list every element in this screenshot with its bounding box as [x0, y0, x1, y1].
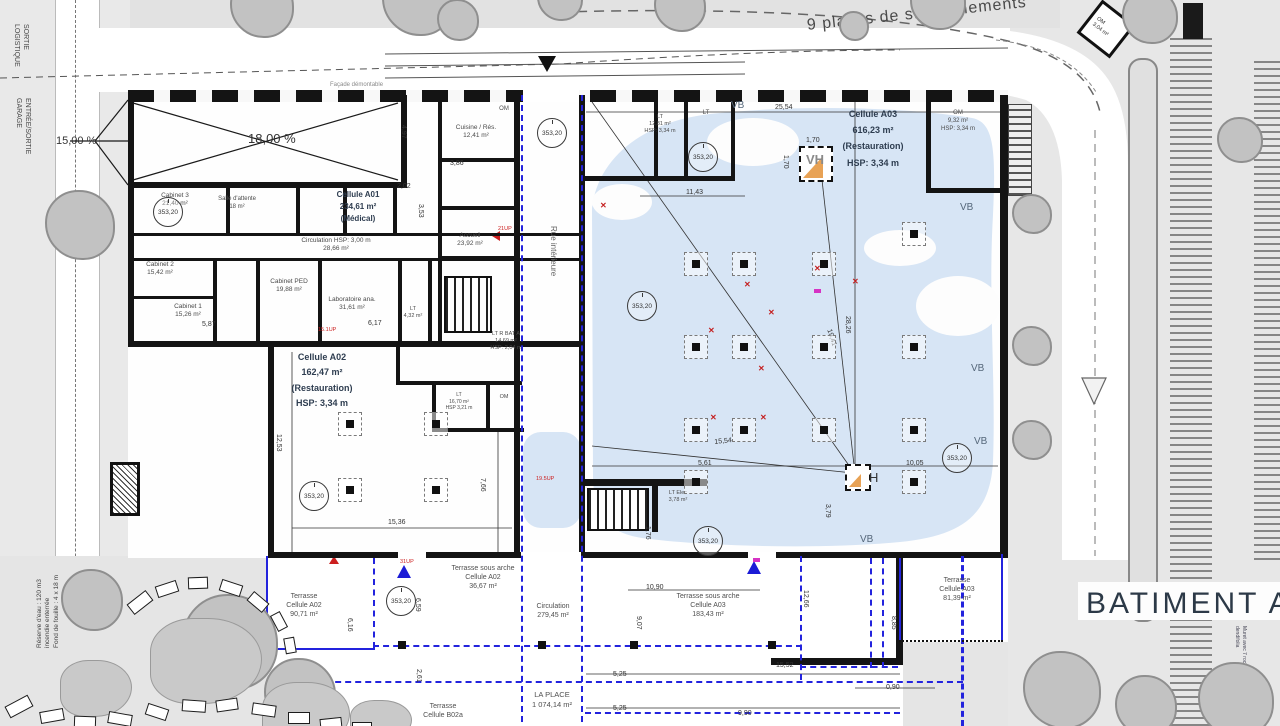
door-tag: 21UP [498, 226, 512, 232]
planting-capsule [1128, 58, 1158, 622]
magenta-marker [814, 289, 821, 293]
structural-column [684, 252, 708, 276]
wall-segment [652, 486, 658, 532]
dimension-label: 6,17 [368, 319, 382, 328]
level-marker: 353,20 [153, 197, 183, 227]
level-marker: 353,20 [693, 526, 723, 556]
rock-paver [319, 717, 342, 726]
level-marker: 353,20 [386, 586, 416, 616]
red-cross-marker: ✕ [710, 413, 717, 422]
structural-column [732, 335, 756, 359]
wall-segment [128, 233, 583, 236]
tree [1012, 194, 1052, 234]
room-label: OM [500, 394, 509, 401]
level-marker: 353,20 [627, 291, 657, 321]
tree [1217, 117, 1263, 163]
tree [839, 11, 869, 41]
dimension-label: 5,25 [613, 704, 627, 713]
room-label: Circulation HSP: 3,00 m 28,66 m² [301, 237, 370, 254]
facade-demontable: Façade démontable [330, 82, 383, 90]
terrace-limit-dashed [882, 558, 884, 668]
tree [1012, 326, 1052, 366]
room-label: LT 16,70 m² HSP 3,21 m [446, 392, 473, 412]
curved-road [975, 28, 1128, 560]
arch-post [768, 641, 776, 649]
column-core [692, 426, 700, 434]
red-cross-marker: ✕ [758, 364, 765, 373]
dimension-label: 3,53 [416, 204, 425, 218]
place-limit-dashed [800, 666, 898, 668]
wall-segment [128, 95, 134, 347]
level-marker: 353,20 [299, 481, 329, 511]
room-label: OM [499, 106, 509, 114]
structural-column [684, 470, 708, 494]
room-label: Salle d'attente 18 m² [218, 196, 256, 212]
column-core [432, 420, 440, 428]
column-core [910, 230, 918, 238]
terrace-label: Terrasse Cellule A03 81,39 m² [939, 576, 974, 603]
exterior-stair-hatch [1008, 104, 1032, 196]
rock-paver [182, 699, 207, 713]
cell-label: Cellule A02 162,47 m² (Restauration) HSP… [291, 350, 352, 411]
terrace-door-arrow-a02 [397, 565, 411, 578]
wall-segment [128, 296, 217, 299]
dimension-label: 6,16 [345, 618, 354, 632]
structural-column [902, 335, 926, 359]
wall-segment [128, 182, 407, 188]
wall-segment [926, 95, 931, 193]
ramp-slope-lines [70, 100, 398, 185]
structural-column [684, 418, 708, 442]
dimension-label: 9,07 [634, 616, 643, 630]
place-limit-dashed [373, 645, 802, 647]
site-plan: ✕ BATIMENT A9 places de stationnementsFa… [0, 0, 1280, 726]
column-core [910, 343, 918, 351]
room-label: LT 4,32 m² [404, 306, 423, 320]
dimension-label: 1,70 [806, 136, 820, 145]
room-label: Laboratoire ana. 31,61 m² [328, 296, 375, 313]
ramp-main: 18,00 % [248, 131, 296, 148]
wall-segment [514, 95, 520, 558]
place-limit-dashed [285, 681, 963, 683]
wall-segment [684, 95, 688, 179]
dimension-label: 1,76 [643, 526, 652, 540]
vh-shaft-bottom [845, 464, 871, 491]
dimension-label: 12,66 [801, 590, 810, 608]
structural-column [424, 412, 448, 436]
stairs-a03 [587, 488, 649, 531]
terrace-edge-blue [266, 648, 375, 650]
terrace-label: Terrasse Cellule A02 90,71 m² [286, 592, 321, 619]
column-core [820, 426, 828, 434]
level-marker: 353,20 [942, 443, 972, 473]
dimension-label: 10,05 [906, 459, 924, 468]
red-cross-marker: ✕ [768, 308, 775, 317]
rue-top-opening [523, 90, 579, 102]
structural-column [732, 418, 756, 442]
structural-column [338, 412, 362, 436]
arch-post [398, 641, 406, 649]
terrace-label: Terrasse sous arche Cellule A03 183,43 m… [676, 592, 739, 619]
room-label: LT R BAT A 14,69 m² HSP: 2,04 m [490, 331, 521, 352]
terrace-limit-dashed [800, 556, 802, 680]
dimension-label: 4,97 [399, 125, 408, 139]
red-cross-marker: ✕ [708, 326, 715, 335]
column-core [910, 426, 918, 434]
structural-column [338, 478, 362, 502]
terrace-limit-dashed [870, 558, 872, 668]
room-label: Cabinet 2 15,42 m² [146, 261, 174, 278]
dimension-label: 28,26 [843, 316, 852, 334]
dimension-label: 3,79 [823, 504, 832, 518]
wall-segment [396, 381, 522, 385]
wall-segment [396, 345, 400, 385]
vh-top-label: VH [806, 152, 824, 169]
column-core [346, 486, 354, 494]
cell-label: Cellule A03 616,23 m² (Restauration) HSP… [842, 106, 903, 171]
dimension-label: 2,02 [397, 182, 411, 191]
rock-paver [74, 716, 96, 726]
terrace-limit-dashed [373, 558, 375, 648]
vb-marker: VB [960, 201, 973, 214]
room-label: Cabinet 1 15,26 m² [174, 303, 202, 320]
wall-segment [1000, 95, 1008, 558]
room-label: Cuisine / Rés. 12,41 m² [456, 124, 496, 141]
level-marker: 353,20 [537, 118, 567, 148]
wall-segment [128, 258, 583, 261]
dimension-label: 3,86 [450, 159, 464, 168]
rock-paver [188, 577, 208, 590]
dimension-label: 10,90 [646, 583, 664, 592]
dimension-label: 15,36 [388, 518, 406, 527]
arch-post [630, 641, 638, 649]
reserve-eau: Réserve d'eau : 120 m3 incendie enterrée… [36, 575, 61, 648]
structural-column [732, 252, 756, 276]
property-line [0, 50, 900, 78]
tree [61, 569, 123, 631]
red-cross-marker: ✕ [744, 280, 751, 289]
vb-marker: VB [860, 533, 873, 546]
terrace-edge-blue [1001, 554, 1003, 642]
rock-paver [288, 712, 310, 724]
room-label: Accueil 23,92 m² [457, 232, 483, 249]
dimension-label: 5,25 [613, 670, 627, 679]
tree [1023, 651, 1101, 726]
dimension-label: 5,61 [698, 459, 712, 468]
dimension-label: 15,52 [776, 661, 794, 670]
tree [45, 190, 115, 260]
tree [437, 0, 479, 41]
cell-label: Cellule A01 234,61 m² (Médical) [337, 189, 380, 225]
dimension-label: 2,61 [414, 669, 423, 683]
door-opening [521, 552, 581, 558]
parking-lines [385, 48, 1008, 78]
terrace-limit-dashed [581, 95, 583, 722]
dimension-label: 5,87 [202, 320, 216, 329]
ramp-side: 15,00 % [56, 134, 96, 148]
vh-bottom-label: H [869, 470, 878, 487]
dimension-label: 8,85 [889, 616, 898, 630]
vb-marker: VB [731, 99, 744, 112]
tree [1012, 420, 1052, 460]
wall-segment [486, 385, 490, 432]
north-entrance-arrow [538, 56, 556, 72]
dimension-label: 11,43 [686, 188, 703, 197]
door-tag: 19.5UP [536, 476, 554, 482]
rock-paver [352, 722, 372, 726]
wall-segment [296, 185, 300, 235]
dimension-label: 12,53 [274, 434, 283, 452]
wall-segment [256, 258, 260, 345]
entree-sortie-garage: ENTRÉE/SORTIE GARAGE [14, 98, 32, 154]
rue-interieure: Rue intérieure [548, 226, 558, 276]
column-core [346, 420, 354, 428]
column-core [692, 260, 700, 268]
door-tag: 15.1UP [318, 327, 336, 333]
terrace-label: Terrasse sous arche Cellule A02 36,67 m² [451, 564, 514, 591]
wall-segment [926, 188, 1006, 193]
dimension-label: 9,90 [738, 709, 752, 718]
structural-column [902, 470, 926, 494]
wall-segment [438, 95, 442, 345]
wall-segment [583, 176, 735, 181]
wall-segment [393, 185, 397, 235]
dimension-label: 0,90 [886, 683, 900, 692]
column-core [820, 260, 828, 268]
wall-segment [213, 258, 217, 345]
column-core [740, 426, 748, 434]
north-marker-block [1183, 3, 1203, 39]
terrace-label: LA PLACE 1 074,14 m² [532, 690, 572, 710]
wall-segment [428, 258, 432, 345]
terrace-limit-dashed [521, 95, 523, 722]
dimension-label: 7,66 [478, 478, 487, 492]
wall-segment [654, 95, 658, 179]
room-label: OM 9,32 m² HSP: 3,34 m [941, 110, 975, 133]
red-cross-marker: ✕ [600, 201, 607, 210]
magenta-marker [753, 558, 760, 562]
structural-column [902, 418, 926, 442]
door-opening [398, 552, 426, 558]
sortie-logistique: SORTIE LOGISTIQUE [12, 24, 30, 67]
red-cross-marker: ✕ [852, 277, 859, 286]
terrace-door-arrow-a03 [747, 561, 761, 574]
terrace-a03-dotted-edge [899, 640, 1003, 642]
dimension-label: 1,70 [781, 155, 790, 169]
dimension-label: 25,54 [775, 103, 793, 112]
reserve-hatch-box [110, 462, 140, 516]
structural-column [902, 222, 926, 246]
column-core [692, 343, 700, 351]
structural-column [812, 418, 836, 442]
column-core [432, 486, 440, 494]
column-core [740, 343, 748, 351]
terrace-label: Terrasse Cellule B02a [423, 702, 463, 720]
door-tag: 31UP [400, 559, 414, 565]
arch-post [538, 641, 546, 649]
wall-segment [438, 206, 518, 210]
stairs-medical-wing [444, 276, 492, 333]
room-label: Cabinet PED 19,88 m² [270, 278, 308, 295]
structural-column [424, 478, 448, 502]
structural-column [812, 335, 836, 359]
vb-marker: VB [971, 362, 984, 375]
batiment-a-title: BATIMENT A [1086, 584, 1280, 623]
structural-column [684, 335, 708, 359]
red-cross-marker: ✕ [760, 413, 767, 422]
terrace-edge-blue [899, 558, 901, 642]
room-label: LT 12,81 m² HSP: 3,34 m [644, 114, 675, 135]
wall-segment [398, 258, 402, 345]
red-cross-marker: ✕ [814, 264, 821, 273]
column-core [820, 343, 828, 351]
column-core [740, 260, 748, 268]
dimension-label: 15,54 [714, 436, 732, 447]
level-marker: 353,20 [688, 142, 718, 172]
room-label: LT [703, 110, 710, 118]
terrace-label: Circulation 279,45 m² [536, 602, 569, 620]
column-core [910, 478, 918, 486]
wall-segment [401, 95, 407, 188]
vb-marker: VB [974, 435, 987, 448]
column-core [692, 478, 700, 486]
